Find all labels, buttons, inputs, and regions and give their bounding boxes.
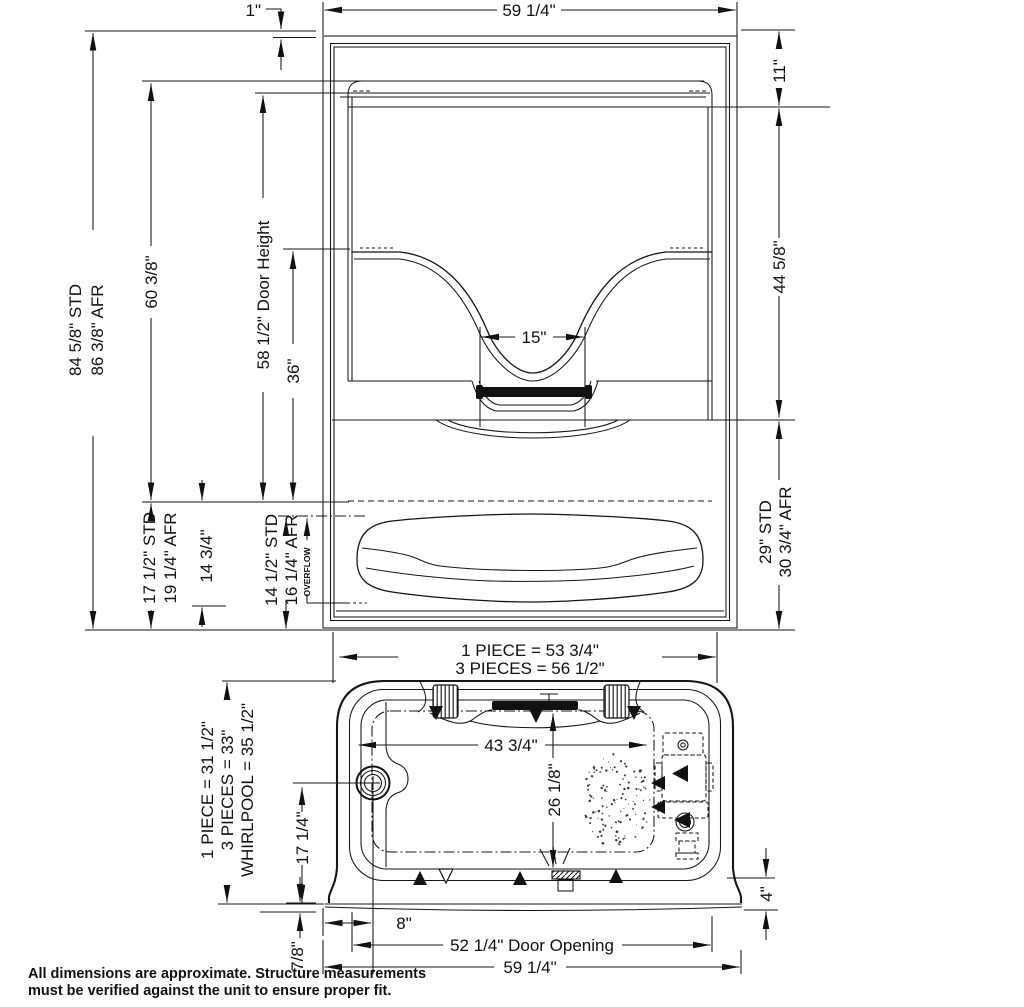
dim-label-grab-bar: 15" xyxy=(522,328,547,347)
seat-scroll-left-outer xyxy=(418,682,426,712)
flow-arrow-2 xyxy=(651,776,665,790)
dim-flange: 7/8" xyxy=(260,877,316,971)
stipple-texture xyxy=(584,753,650,845)
dim-top-offset: 1" xyxy=(85,1,316,70)
jet-marker-top-2 xyxy=(529,709,543,723)
footnote-line-2: must be verified against the unit to ens… xyxy=(28,983,391,999)
trough-inner xyxy=(448,420,618,433)
dim-overall-width-top: 59 1/4" xyxy=(323,1,737,90)
dim-top-right: 11" xyxy=(741,30,795,106)
flow-arrow-3 xyxy=(651,800,665,814)
trough-outer xyxy=(436,420,630,438)
dim-deck-height: 17 1/2" STD 19 1/4" AFR xyxy=(140,504,180,629)
dim-drain-from-back: 26 1/8" xyxy=(545,714,564,868)
dim-label-width-one-piece: 1 PIECE = 53 3/4" xyxy=(461,641,599,660)
dim-label-interior-width: 43 3/4" xyxy=(484,736,537,755)
dim-mid-right: 44 5/8" xyxy=(770,109,789,418)
dim-label-overflow-afr: 16 1/4" AFR xyxy=(282,514,301,605)
dim-label-top-offset: 1" xyxy=(246,1,262,20)
pump-assembly xyxy=(651,733,713,859)
dim-drain-offset: 8" xyxy=(323,908,412,936)
apron-outline xyxy=(357,514,703,602)
dim-label-interior-height: 60 3/8" xyxy=(142,255,161,308)
dim-label-bottom-right-afr: 30 3/4" AFR xyxy=(776,486,795,577)
elevation-view: 1" 59 1/4" 11" 44 5/8" 29" STD 30 3/4" A… xyxy=(66,1,830,630)
plan-view: 1 PIECE = 53 3/4" 3 PIECES = 56 1/2" 1 P… xyxy=(198,632,778,977)
dim-label-depth-one-piece: 1 PIECE = 31 1/2" xyxy=(198,721,217,859)
dim-label-overall-width-bottom: 59 1/4" xyxy=(503,958,556,977)
dim-label-seat-back: 36" xyxy=(284,359,303,384)
dim-label-width-three-pieces: 3 PIECES = 56 1/2" xyxy=(455,659,604,678)
dim-overall-height-left: 84 5/8" STD 86 3/8" AFR xyxy=(66,33,107,629)
plan-bowl-bottom xyxy=(372,711,654,852)
dim-label-deck-afr: 19 1/4" AFR xyxy=(161,512,180,603)
seat-back-curve-outer xyxy=(352,252,712,373)
jet-marker-bottom-2 xyxy=(513,871,527,885)
dim-label-deck-std: 17 1/2" STD xyxy=(140,512,159,604)
apron-recess-lower xyxy=(366,566,694,581)
footnote: All dimensions are approximate. Structur… xyxy=(28,966,426,999)
dim-label-drain-from-back: 26 1/8" xyxy=(545,763,564,816)
dim-plan-width-top: 1 PIECE = 53 3/4" 3 PIECES = 56 1/2" xyxy=(333,632,717,683)
dim-interior-height: 60 3/8" xyxy=(142,84,161,501)
armrest-block-right xyxy=(604,685,629,718)
jet-marker-bottom-3 xyxy=(609,869,623,883)
dim-label-door-height: 58 1/2" Door Height xyxy=(254,220,273,369)
jet-marker-bottom-1 xyxy=(413,871,427,885)
dim-label-apron-gap: 4" xyxy=(757,886,776,902)
grab-bar-plan xyxy=(492,701,578,710)
apron-recess-upper xyxy=(362,548,697,570)
dim-apron-gap: 4" xyxy=(727,848,778,940)
dim-overflow-height: 14 1/2" STD 16 1/4" AFR xyxy=(262,514,301,629)
dim-label-top-right: 11" xyxy=(770,59,789,83)
overflow-label: OVERFLOW xyxy=(302,546,312,596)
footnote-line-1: All dimensions are approximate. Structur… xyxy=(28,966,426,982)
dim-label-bottom-right-std: 29" STD xyxy=(756,500,775,564)
dim-bottom-right: 29" STD 30 3/4" AFR xyxy=(756,422,795,629)
seat-contour-front xyxy=(470,721,600,728)
dim-label-door-opening: 52 1/4" Door Opening xyxy=(450,936,614,955)
grab-bar-post-right xyxy=(585,385,592,399)
dim-label-apron-height: 14 3/4" xyxy=(197,529,216,582)
dim-label-drain-height: 17 1/4" xyxy=(293,811,312,864)
dim-plan-depth-left: 1 PIECE = 31 1/2" 3 PIECES = 33" WHIRLPO… xyxy=(198,681,336,904)
dim-label-drain-offset: 8" xyxy=(396,914,412,933)
dim-door-height: 58 1/2" Door Height xyxy=(254,96,273,501)
dim-label-mid-right: 44 5/8" xyxy=(770,240,789,293)
flow-arrow-1 xyxy=(672,765,688,782)
dim-label-depth-three-pieces: 3 PIECES = 33" xyxy=(218,730,237,851)
dim-interior-width: 43 3/4" xyxy=(359,736,647,755)
dim-label-overall-width-top: 59 1/4" xyxy=(502,1,555,20)
seat-back-curve-inner xyxy=(354,259,710,381)
dim-grab-bar: 15" xyxy=(480,327,585,427)
dim-label-depth-whirlpool: WHIRLPOOL = 35 1/2" xyxy=(238,703,257,877)
dim-label-left-std: 84 5/8" STD xyxy=(66,284,85,376)
plan-front-sweep xyxy=(325,907,742,911)
dim-label-overflow-std: 14 1/2" STD xyxy=(262,514,281,606)
grab-bar-front xyxy=(480,387,588,397)
dim-seat-back: 36" xyxy=(283,249,350,500)
shower-tub-dimension-drawing: 1" 59 1/4" 11" 44 5/8" 29" STD 30 3/4" A… xyxy=(0,0,1024,1007)
technical-drawing-page: 1" 59 1/4" 11" 44 5/8" 29" STD 30 3/4" A… xyxy=(0,0,1024,1007)
dim-label-left-afr: 86 3/8" AFR xyxy=(88,284,107,375)
